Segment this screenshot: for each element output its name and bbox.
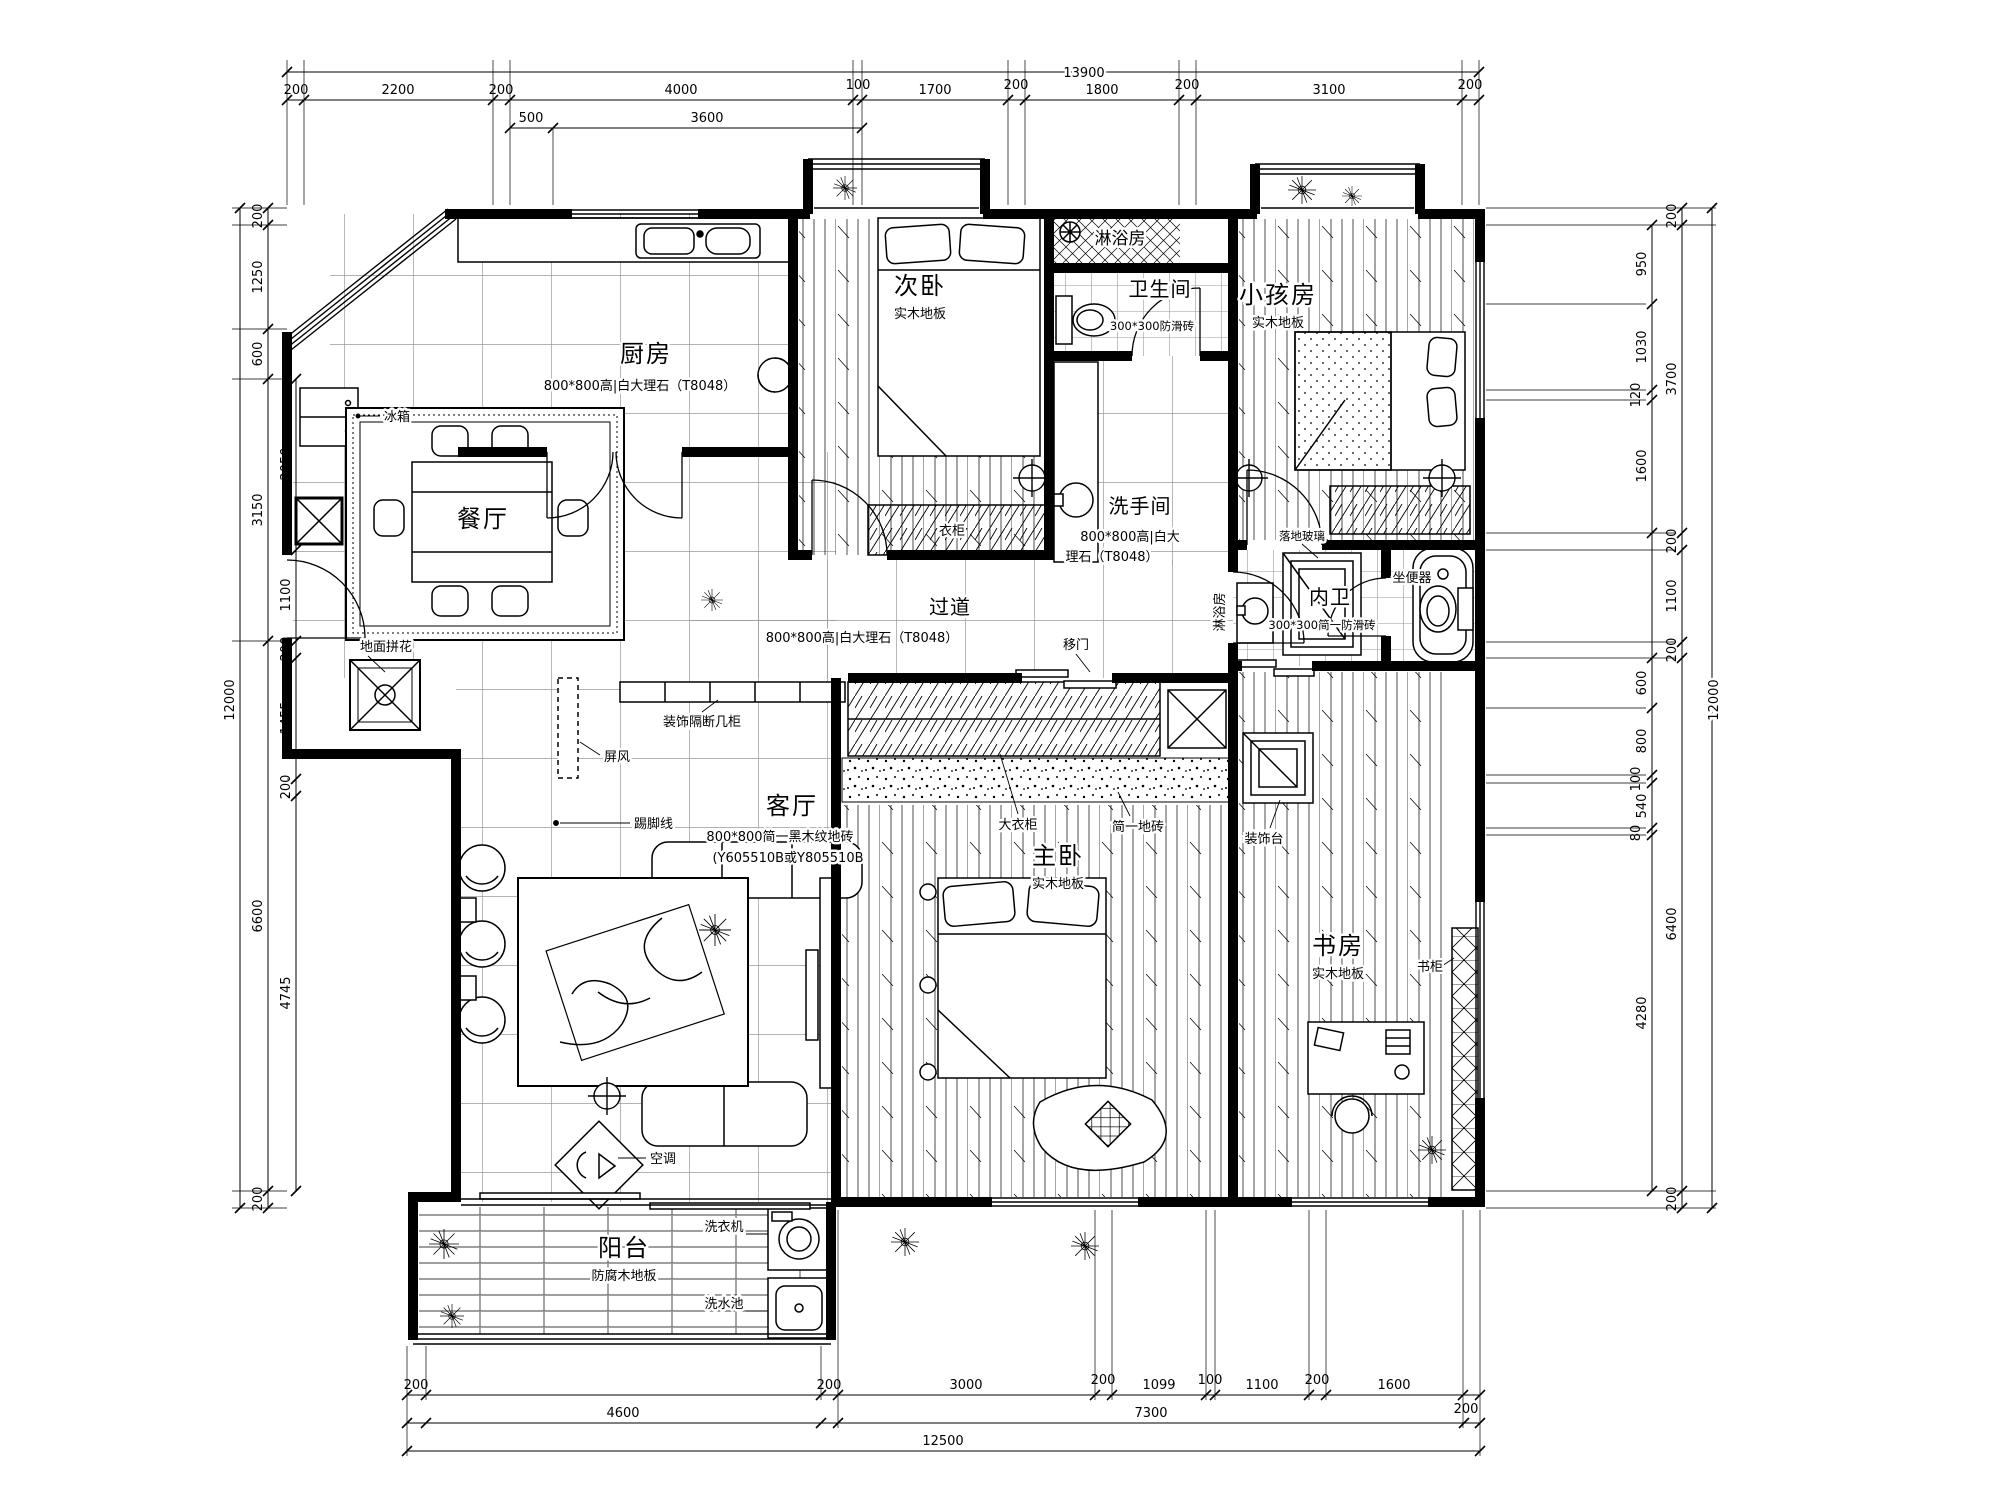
svg-text:200: 200 xyxy=(404,1378,429,1393)
svg-text:1100: 1100 xyxy=(279,578,294,611)
svg-text:200: 200 xyxy=(1665,638,1680,663)
glass-label: 落地玻璃 xyxy=(1279,529,1325,543)
svg-text:1700: 1700 xyxy=(918,83,951,98)
closet-label: 衣柜 xyxy=(939,523,965,539)
screen xyxy=(558,678,578,778)
partition-label: 装饰隔断几柜 xyxy=(663,715,741,730)
room-dining: 餐厅 xyxy=(457,505,509,533)
svg-text:3100: 3100 xyxy=(1312,83,1345,98)
svg-text:200: 200 xyxy=(817,1378,842,1393)
room-balcony: 阳台 xyxy=(598,1234,650,1262)
svg-text:3600: 3600 xyxy=(690,111,723,126)
skirting-label: 踢脚线 xyxy=(634,816,673,832)
room-bath: 卫生间 xyxy=(1129,277,1192,301)
svg-text:200: 200 xyxy=(1004,78,1029,93)
svg-text:1030: 1030 xyxy=(1635,330,1650,363)
svg-text:(Y605510B或Y805510B: (Y605510B或Y805510B xyxy=(712,851,863,866)
kids-bed xyxy=(1295,332,1465,470)
svg-text:200: 200 xyxy=(1305,1373,1330,1388)
svg-text:300*300简一防滑砖: 300*300简一防滑砖 xyxy=(1268,618,1376,632)
svg-text:100: 100 xyxy=(1629,767,1644,792)
medallion-label: 地面拼花 xyxy=(360,639,412,655)
bookcase xyxy=(1452,928,1478,1190)
floor-medallion xyxy=(350,660,420,730)
svg-text:防腐木地板: 防腐木地板 xyxy=(591,1268,656,1284)
svg-text:800*800简一黑木纹地砖: 800*800简一黑木纹地砖 xyxy=(706,829,853,845)
partition-cabinet xyxy=(620,682,845,702)
bedroom2-bed xyxy=(878,218,1040,456)
room-corridor: 过道 xyxy=(929,595,971,619)
dim-right-total: 12000 xyxy=(1707,679,1722,720)
svg-text:4745: 4745 xyxy=(279,976,294,1009)
svg-text:1800: 1800 xyxy=(1085,83,1118,98)
console-label: 装饰台 xyxy=(1244,832,1283,847)
svg-text:300*300防滑砖: 300*300防滑砖 xyxy=(1110,319,1195,333)
fridge-label: 冰箱 xyxy=(384,409,410,425)
svg-text:200: 200 xyxy=(1458,78,1483,93)
svg-text:200: 200 xyxy=(1665,1187,1680,1212)
room-bedroom2: 次卧 xyxy=(894,272,946,300)
svg-text:1250: 1250 xyxy=(251,260,266,293)
svg-text:3700: 3700 xyxy=(1665,362,1680,395)
svg-text:120: 120 xyxy=(1629,383,1644,408)
svg-text:600: 600 xyxy=(1635,671,1650,696)
dim-left-total: 12000 xyxy=(223,679,238,720)
svg-text:200: 200 xyxy=(1665,204,1680,229)
master-bed xyxy=(920,878,1106,1080)
floor-plan-drawing: 13900 200 2200 200 4000 100 1700 200 180… xyxy=(0,0,2000,1488)
tv xyxy=(806,950,818,1040)
washer-label: 洗衣机 xyxy=(704,1219,743,1235)
room-living: 客厅 xyxy=(766,792,818,820)
room-study: 书房 xyxy=(1312,932,1364,960)
svg-text:200: 200 xyxy=(284,83,309,98)
ac-label: 空调 xyxy=(650,1152,676,1167)
svg-text:540: 540 xyxy=(1635,794,1650,819)
svg-text:800*800高|白大理石（T8048）: 800*800高|白大理石（T8048） xyxy=(544,378,737,394)
svg-text:1099: 1099 xyxy=(1142,1378,1175,1393)
svg-text:800: 800 xyxy=(1635,729,1650,754)
svg-text:4600: 4600 xyxy=(606,1406,639,1421)
svg-text:500: 500 xyxy=(519,111,544,126)
svg-text:1455: 1455 xyxy=(279,701,294,734)
svg-text:实木地板: 实木地板 xyxy=(894,307,946,322)
washroom-basin xyxy=(1059,483,1093,517)
svg-text:2050: 2050 xyxy=(279,447,294,480)
svg-text:200: 200 xyxy=(279,775,294,800)
wardrobe-label: 大衣柜 xyxy=(998,817,1037,833)
svg-text:200: 200 xyxy=(251,204,266,229)
svg-text:3000: 3000 xyxy=(949,1378,982,1393)
dim-bottom-total: 12500 xyxy=(922,1434,963,1449)
toilet-label: 坐便器 xyxy=(1392,571,1431,586)
svg-text:200: 200 xyxy=(251,1187,266,1212)
svg-text:200: 200 xyxy=(1454,1402,1479,1417)
bookcase-label: 书柜 xyxy=(1417,960,1443,975)
sink-label: 洗水池 xyxy=(704,1297,743,1312)
svg-text:800*800高|白大理石（T8048）: 800*800高|白大理石（T8048） xyxy=(766,630,959,646)
svg-text:理石（T8048）: 理石（T8048） xyxy=(1065,550,1158,565)
room-shower-top: 淋浴房 xyxy=(1095,229,1146,249)
svg-text:2200: 2200 xyxy=(381,83,414,98)
svg-text:实木地板: 实木地板 xyxy=(1032,877,1084,892)
floor-plan-sheet: 13900 200 2200 200 4000 100 1700 200 180… xyxy=(0,0,2000,1488)
dim-top-total: 13900 xyxy=(1063,66,1104,81)
svg-text:200: 200 xyxy=(279,637,294,662)
svg-text:950: 950 xyxy=(1635,252,1650,277)
svg-text:1100: 1100 xyxy=(1245,1378,1278,1393)
svg-text:4280: 4280 xyxy=(1635,996,1650,1029)
tile-label: 简一地砖 xyxy=(1112,819,1164,835)
svg-text:100: 100 xyxy=(846,78,871,93)
sliding-door-panel xyxy=(1016,670,1068,677)
svg-text:800*800高|白大: 800*800高|白大 xyxy=(1080,529,1180,545)
room-kitchen: 厨房 xyxy=(620,340,672,368)
svg-text:实木地板: 实木地板 xyxy=(1312,967,1364,982)
svg-text:3150: 3150 xyxy=(251,493,266,526)
svg-text:7300: 7300 xyxy=(1134,1406,1167,1421)
svg-text:200: 200 xyxy=(1091,1373,1116,1388)
svg-text:6600: 6600 xyxy=(251,899,266,932)
svg-text:1600: 1600 xyxy=(1377,1378,1410,1393)
room-master: 主卧 xyxy=(1032,842,1084,870)
living-rug xyxy=(518,878,748,1086)
room-kids: 小孩房 xyxy=(1239,281,1317,309)
living-sofa-bottom xyxy=(642,1082,807,1146)
svg-text:200: 200 xyxy=(1175,78,1200,93)
tile-band xyxy=(842,758,1233,802)
ensuite-toilet xyxy=(1420,586,1473,632)
room-ensuite: 内卫 xyxy=(1309,585,1351,609)
shower2-label: 淋浴房 xyxy=(1212,592,1228,631)
screen-label: 屏风 xyxy=(604,750,630,765)
ensuite-basin xyxy=(1237,583,1273,643)
svg-text:100: 100 xyxy=(1198,1373,1223,1388)
svg-text:4000: 4000 xyxy=(664,83,697,98)
svg-text:80: 80 xyxy=(1629,825,1644,842)
room-washroom: 洗手间 xyxy=(1109,494,1172,518)
svg-text:1600: 1600 xyxy=(1635,449,1650,482)
svg-text:200: 200 xyxy=(1665,529,1680,554)
svg-text:600: 600 xyxy=(251,342,266,367)
svg-text:1100: 1100 xyxy=(1665,579,1680,612)
wash-basin xyxy=(768,1278,830,1338)
sliding-door-label: 移门 xyxy=(1063,638,1089,653)
svg-text:实木地板: 实木地板 xyxy=(1252,316,1304,331)
svg-text:6400: 6400 xyxy=(1665,907,1680,940)
console-table xyxy=(1243,733,1313,803)
washing-machine xyxy=(768,1208,830,1270)
svg-text:200: 200 xyxy=(489,83,514,98)
kids-closet xyxy=(1330,486,1470,534)
